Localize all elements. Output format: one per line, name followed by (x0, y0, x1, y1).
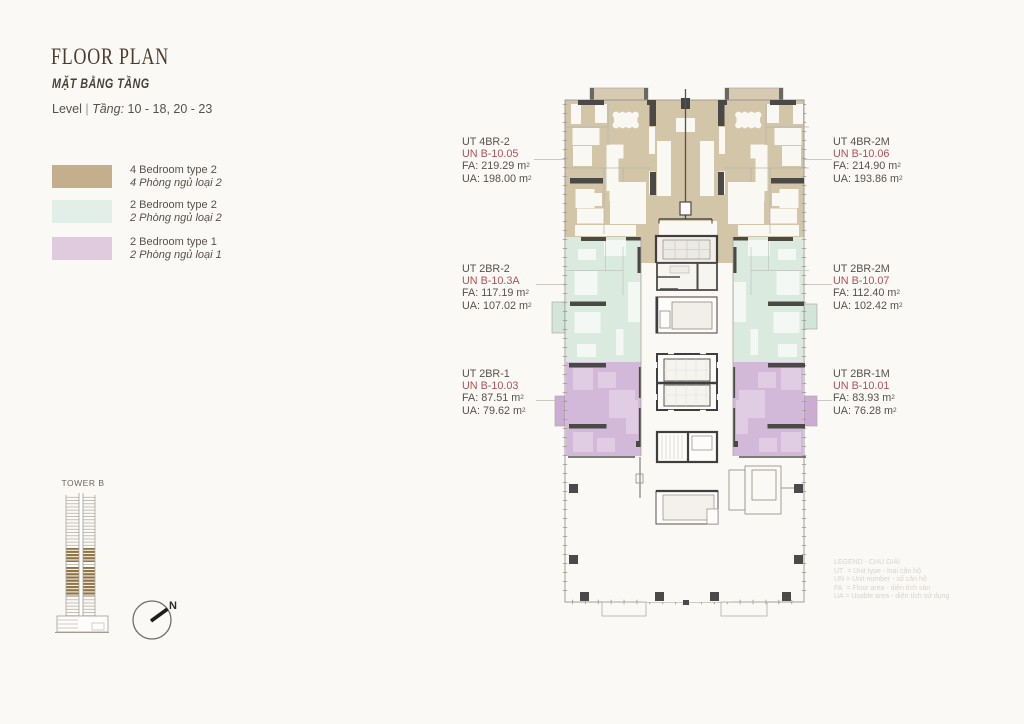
svg-text:N: N (169, 600, 177, 612)
